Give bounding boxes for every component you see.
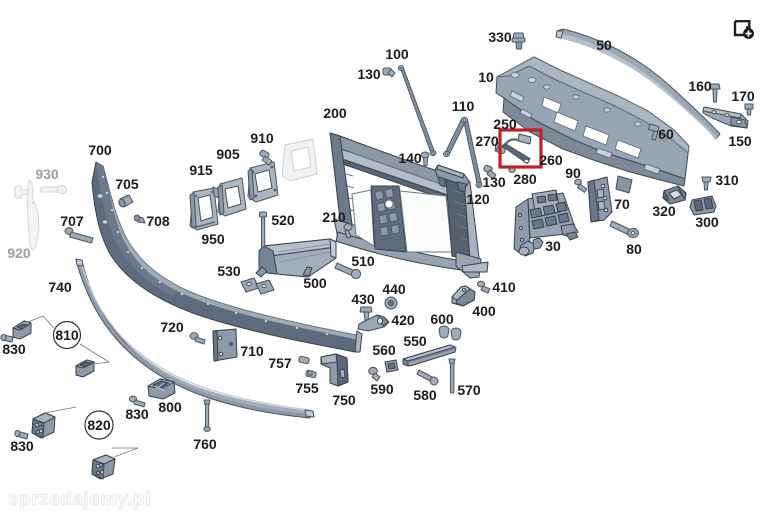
svg-text:950: 950	[201, 231, 225, 247]
svg-text:150: 150	[728, 133, 752, 149]
svg-text:200: 200	[323, 105, 347, 121]
svg-text:530: 530	[217, 263, 241, 279]
svg-text:sprzedajemy.pl: sprzedajemy.pl	[8, 489, 151, 510]
svg-text:100: 100	[385, 46, 409, 62]
svg-text:70: 70	[614, 196, 630, 212]
svg-text:170: 170	[731, 88, 755, 104]
svg-text:440: 440	[382, 281, 406, 297]
svg-text:750: 750	[332, 392, 356, 408]
svg-text:500: 500	[303, 275, 327, 291]
svg-text:830: 830	[2, 341, 26, 357]
svg-text:270: 270	[475, 133, 499, 149]
svg-text:280: 280	[513, 171, 537, 187]
svg-text:820: 820	[87, 417, 111, 433]
svg-text:140: 140	[398, 150, 422, 166]
svg-text:757: 757	[268, 355, 292, 371]
svg-text:755: 755	[295, 380, 319, 396]
svg-text:60: 60	[658, 126, 674, 142]
svg-text:260: 260	[539, 152, 563, 168]
svg-text:905: 905	[216, 146, 240, 162]
svg-text:310: 310	[715, 172, 739, 188]
svg-text:710: 710	[240, 343, 264, 359]
svg-text:30: 30	[545, 238, 561, 254]
svg-text:520: 520	[271, 212, 295, 228]
svg-text:320: 320	[652, 203, 676, 219]
svg-text:580: 580	[413, 387, 437, 403]
svg-text:110: 110	[452, 98, 475, 114]
svg-text:210: 210	[322, 209, 346, 225]
svg-text:160: 160	[688, 78, 712, 94]
svg-text:930: 930	[35, 166, 59, 182]
svg-text:300: 300	[695, 214, 719, 230]
svg-text:700: 700	[88, 142, 112, 158]
svg-text:550: 550	[403, 333, 427, 349]
svg-text:915: 915	[189, 162, 213, 178]
svg-text:50: 50	[596, 37, 612, 53]
svg-text:560: 560	[372, 342, 396, 358]
svg-text:130: 130	[482, 174, 506, 190]
svg-text:600: 600	[430, 311, 454, 327]
svg-text:80: 80	[626, 241, 642, 257]
svg-text:590: 590	[370, 381, 394, 397]
svg-text:420: 420	[391, 312, 415, 328]
svg-text:430: 430	[351, 291, 375, 307]
svg-text:510: 510	[351, 253, 375, 269]
svg-text:810: 810	[55, 327, 79, 343]
svg-text:400: 400	[472, 303, 496, 319]
svg-text:250: 250	[493, 116, 517, 132]
svg-text:570: 570	[457, 382, 481, 398]
svg-text:800: 800	[158, 399, 182, 415]
svg-text:707: 707	[60, 213, 84, 229]
svg-text:90: 90	[565, 165, 581, 181]
svg-text:760: 760	[193, 436, 217, 452]
svg-text:10: 10	[478, 69, 494, 85]
svg-text:410: 410	[492, 279, 516, 295]
svg-text:720: 720	[160, 319, 184, 335]
svg-text:920: 920	[7, 245, 31, 261]
svg-text:910: 910	[250, 130, 274, 146]
svg-text:740: 740	[48, 279, 72, 295]
svg-text:705: 705	[115, 176, 139, 192]
svg-text:830: 830	[10, 438, 34, 454]
svg-text:330: 330	[488, 29, 512, 45]
svg-text:130: 130	[357, 66, 381, 82]
svg-text:830: 830	[125, 406, 149, 422]
svg-text:708: 708	[146, 213, 170, 229]
svg-text:120: 120	[466, 191, 490, 207]
